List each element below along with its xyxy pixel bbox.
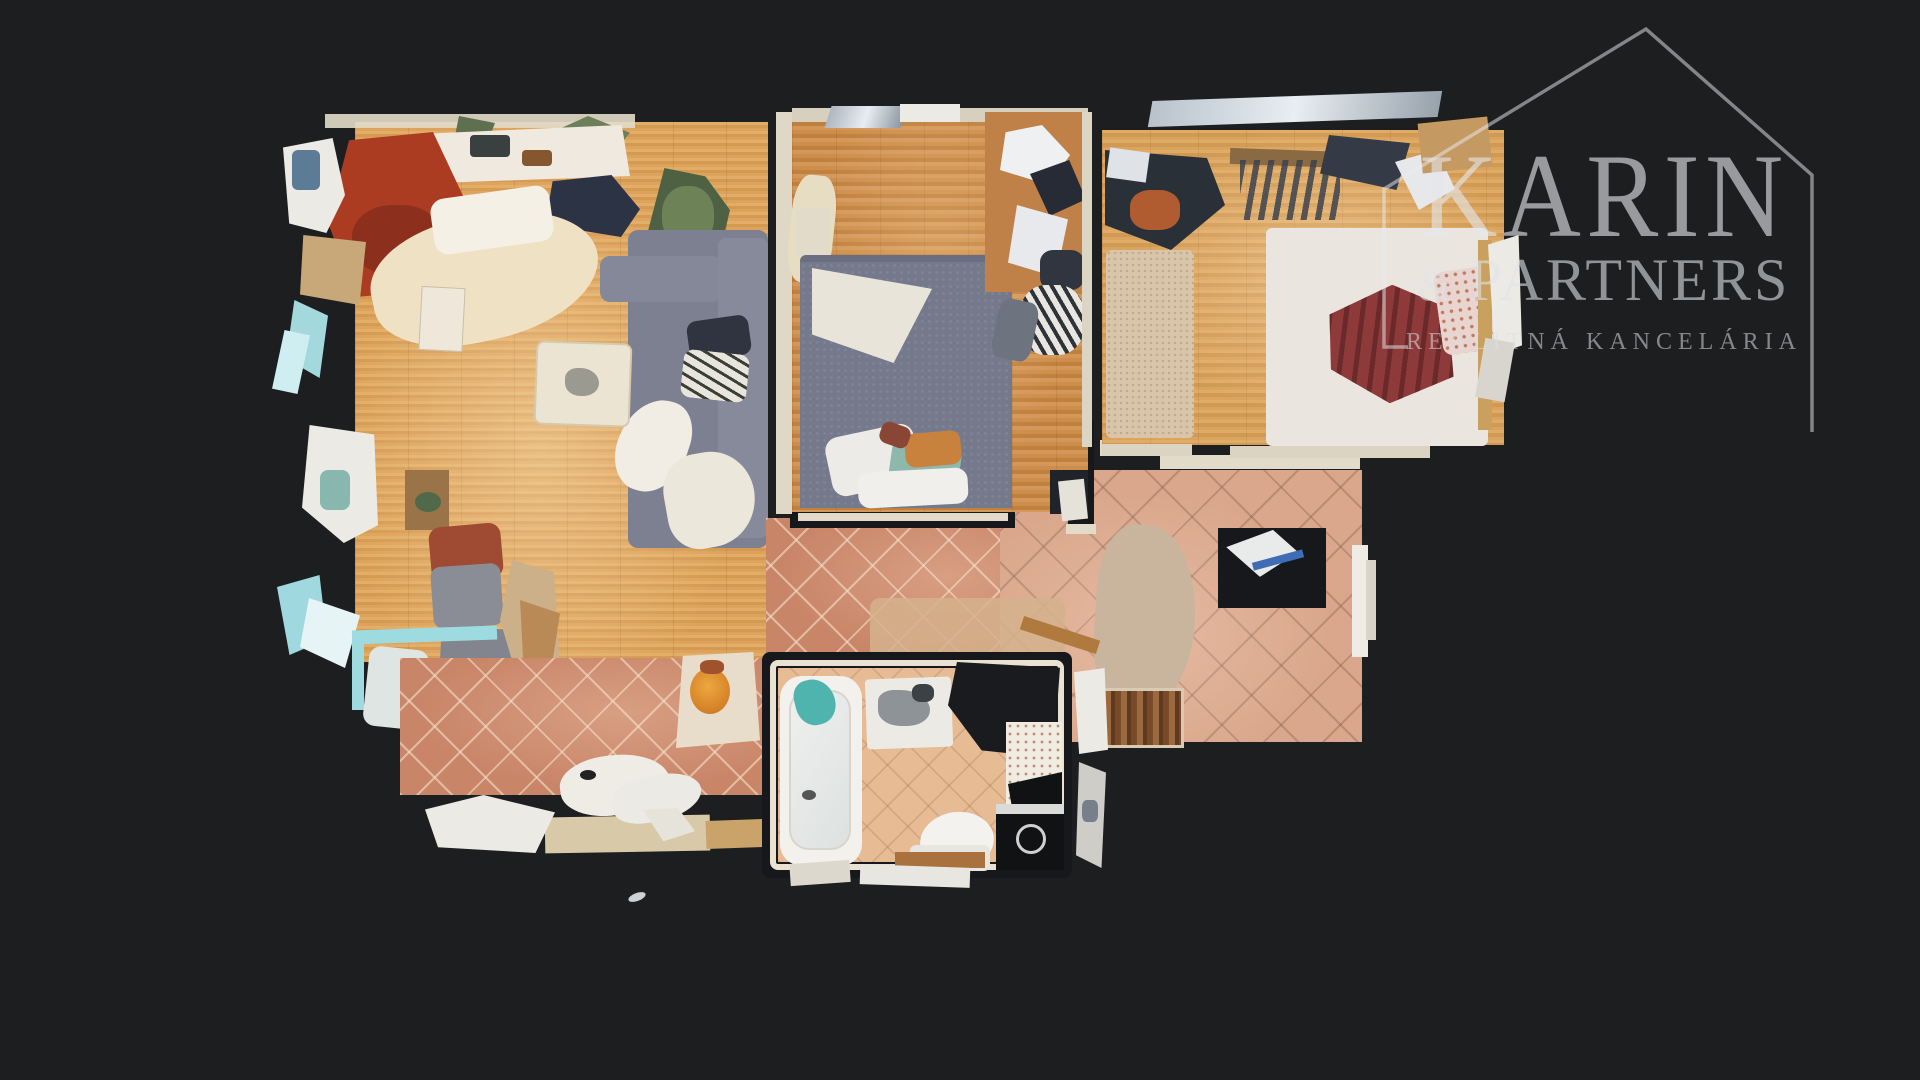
scan-fragment bbox=[1130, 190, 1180, 230]
wall-segment bbox=[1102, 444, 1192, 456]
wall-segment bbox=[1230, 446, 1430, 458]
viewer-canvas[interactable]: KARIN &PARTNERS REALITNÁ KANCELÁRIA bbox=[0, 0, 1920, 1080]
area-rug bbox=[1106, 250, 1194, 438]
scan-fragment bbox=[1106, 147, 1150, 182]
mirror-fragment bbox=[1148, 91, 1442, 127]
dollhouse-floorplan[interactable] bbox=[0, 0, 1920, 1080]
scan-fragment bbox=[1418, 116, 1493, 173]
bedroom-right bbox=[0, 0, 1920, 1080]
